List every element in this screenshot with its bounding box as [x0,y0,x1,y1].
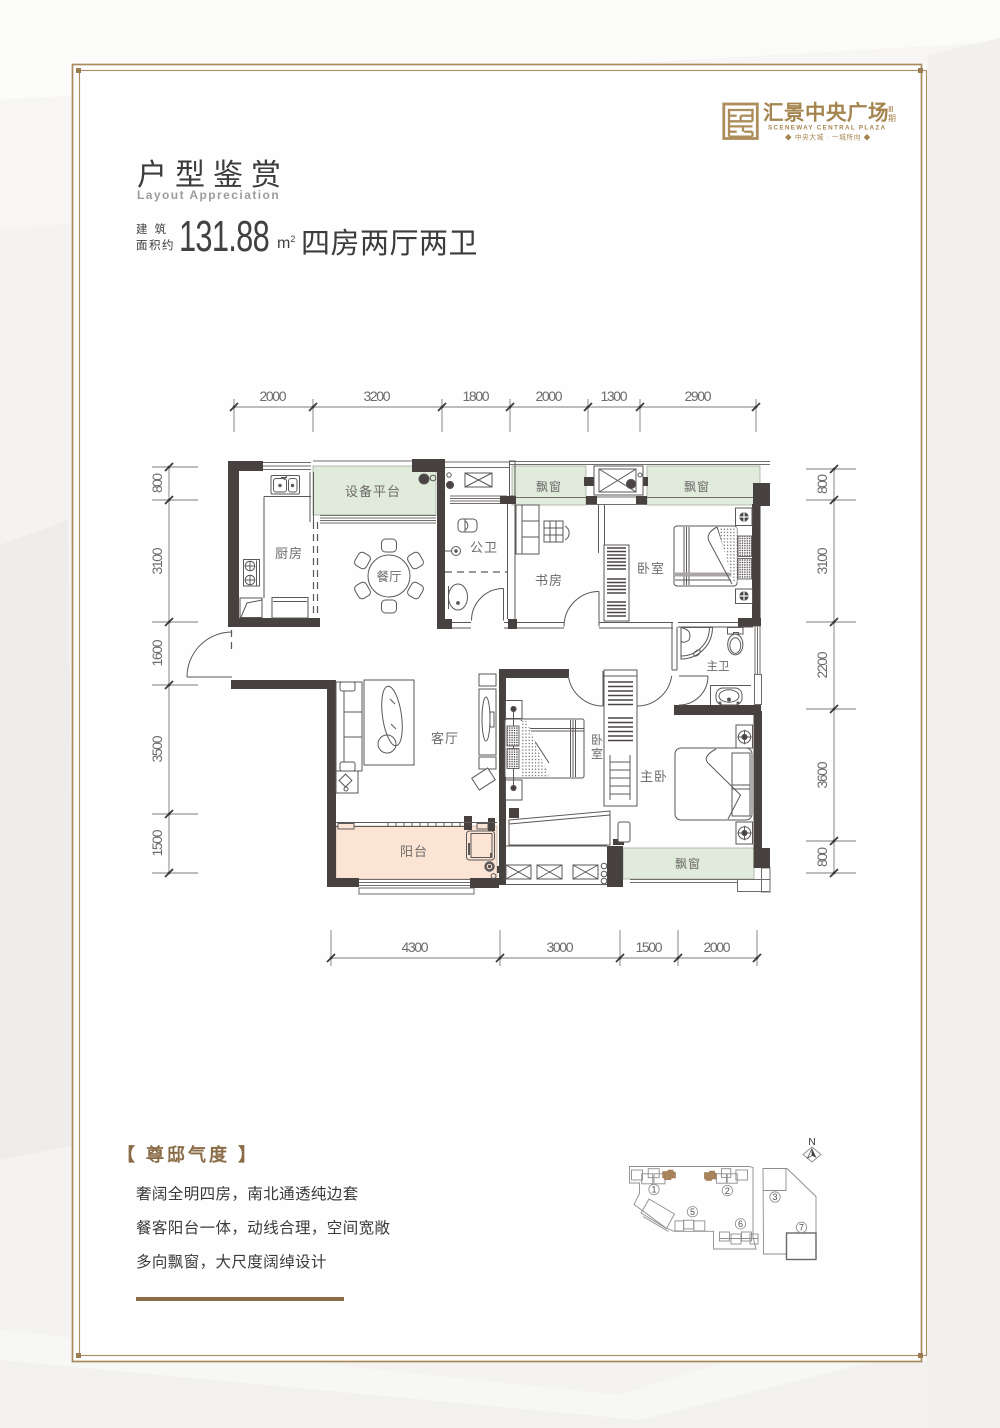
svg-text:主卧: 主卧 [640,769,668,784]
svg-text:SCENEWAY CENTRAL PLAZA: SCENEWAY CENTRAL PLAZA [768,125,886,132]
svg-text:3200: 3200 [364,388,391,404]
svg-text:3100: 3100 [814,547,830,574]
svg-text:室: 室 [591,746,603,761]
svg-text:期: 期 [888,114,896,123]
svg-text:卧: 卧 [591,733,603,747]
svg-text:2000: 2000 [704,939,731,955]
svg-text:卧室: 卧室 [637,561,665,576]
svg-text:3600: 3600 [814,761,830,788]
svg-text:公卫: 公卫 [470,540,498,555]
svg-text:餐厅: 餐厅 [376,569,401,584]
svg-text:800: 800 [149,473,165,493]
svg-text:1: 1 [651,1185,656,1195]
svg-text:飘窗: 飘窗 [684,480,710,494]
svg-text:4300: 4300 [402,939,429,955]
svg-text:1500: 1500 [636,939,663,955]
svg-text:1500: 1500 [149,829,165,856]
svg-text:阳台: 阳台 [400,844,428,859]
svg-text:2000: 2000 [536,388,563,404]
svg-text:2: 2 [725,1186,730,1196]
svg-text:Ⅲ: Ⅲ [888,105,894,114]
svg-text:6: 6 [738,1219,743,1229]
svg-text:设备平台: 设备平台 [345,484,401,499]
svg-text:1600: 1600 [149,639,165,666]
svg-text:3500: 3500 [149,735,165,762]
svg-text:2000: 2000 [260,388,287,404]
svg-text:厨房: 厨房 [275,546,303,561]
svg-text:7: 7 [799,1223,804,1233]
svg-text:飘窗: 飘窗 [675,857,701,871]
svg-text:汇景中央广场: 汇景中央广场 [763,101,889,125]
svg-text:飘窗: 飘窗 [536,480,562,494]
svg-text:N: N [808,1136,816,1148]
svg-text:书房: 书房 [535,573,563,588]
svg-text:800: 800 [814,474,830,494]
svg-text:2200: 2200 [814,651,830,678]
svg-text:◆ 中央大城 · 一城所向 ◆: ◆ 中央大城 · 一城所向 ◆ [785,133,871,142]
svg-text:客厅: 客厅 [431,731,459,746]
svg-text:2900: 2900 [685,388,712,404]
svg-text:3000: 3000 [547,939,574,955]
svg-text:1800: 1800 [463,388,490,404]
svg-text:3100: 3100 [149,547,165,574]
svg-text:800: 800 [814,847,830,867]
svg-text:3: 3 [772,1192,777,1202]
svg-text:1300: 1300 [601,388,628,404]
svg-text:主卫: 主卫 [707,660,730,673]
svg-text:5: 5 [690,1207,695,1217]
